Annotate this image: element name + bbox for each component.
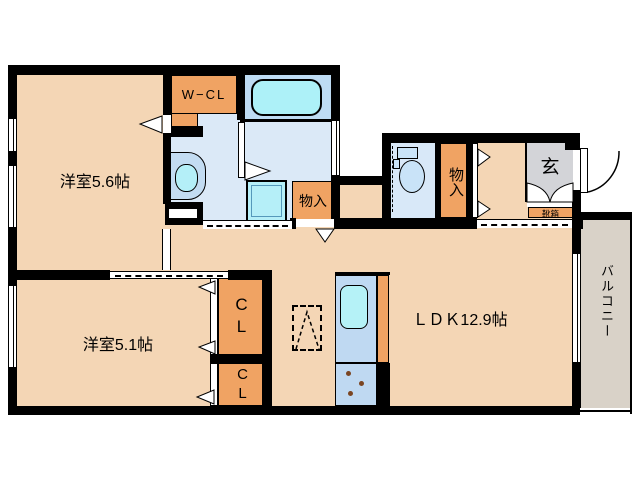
bedroom1-label: 洋室5.6帖 xyxy=(33,168,157,192)
wall-wcl-step xyxy=(171,126,203,137)
storage-washroom-label: 物入 xyxy=(292,191,334,211)
wall-top-right-block xyxy=(382,133,580,143)
window-washroom xyxy=(331,120,340,176)
wall-kitchen-southeast xyxy=(377,363,390,406)
wall-balcony-top xyxy=(572,212,632,220)
sliding-door-dash xyxy=(207,225,289,227)
wall-bedrooms-divider-west xyxy=(8,270,110,280)
stove-burner-icon xyxy=(346,371,351,376)
window-glass-line xyxy=(13,166,14,227)
refrigerator-space-icon xyxy=(292,305,322,351)
window-balcony-sliding xyxy=(572,253,581,363)
entrance-door-leaf xyxy=(580,148,588,193)
toilet-handle-icon xyxy=(393,159,400,169)
toilet-door-dashed-line xyxy=(392,146,393,212)
wall-partition-mid xyxy=(163,133,171,204)
bathroom-door-leaf xyxy=(238,122,245,178)
floor-plan: 洋室5.6帖 洋室5.1帖 ＬＤＫ12.9帖 W−CL 物入 物入 玄 靴箱 C… xyxy=(0,0,638,480)
balcony-label: バルコニー xyxy=(596,232,616,370)
wall-top-left-block xyxy=(8,65,340,75)
wall-closet-divider xyxy=(210,355,272,363)
bathtub-icon xyxy=(251,79,322,116)
entrance-label: 玄 xyxy=(527,152,573,179)
wall-ldk-west xyxy=(263,270,272,406)
kitchen-sink-icon xyxy=(340,285,368,329)
window-bedroom2 xyxy=(8,285,17,368)
wall-thin-partition xyxy=(162,229,171,270)
sliding-door-hallway-ldk xyxy=(477,219,572,228)
wall-balcony-west-upper xyxy=(572,220,581,253)
window-glass-line xyxy=(336,121,337,175)
window-glass-line xyxy=(577,254,578,362)
stove-burner-icon xyxy=(359,381,364,386)
door-closet-upper xyxy=(210,278,218,355)
entrance-door-arc-icon xyxy=(588,151,619,192)
closet-upper-label: CL xyxy=(230,288,251,346)
exterior-void-notch xyxy=(340,0,382,177)
wall-nub-slot xyxy=(169,209,197,218)
window-glass-line xyxy=(13,119,14,151)
window-bedroom1-b xyxy=(8,165,17,228)
bedroom2-label: 洋室5.1帖 xyxy=(56,331,180,355)
door-storage-hall xyxy=(472,143,478,218)
window-glass-line xyxy=(13,286,14,367)
exterior-void-topright xyxy=(382,0,638,133)
vanity-basin-icon xyxy=(175,164,198,192)
wall-toilet-storage-divider xyxy=(435,143,440,218)
wall-entrance-corner xyxy=(565,133,580,150)
storage-hall-label: 物入 xyxy=(442,151,466,213)
entrance-step-strip xyxy=(527,200,573,207)
washing-machine-pan-icon xyxy=(246,180,287,222)
wall-ldk-north-b xyxy=(334,218,477,229)
wall-balcony-west-lower xyxy=(572,363,581,408)
sliding-door-washroom xyxy=(203,220,292,229)
washing-machine-pan-inner xyxy=(251,185,282,217)
door-closet-lower xyxy=(210,363,218,406)
walk-in-closet-area-lower xyxy=(171,113,198,127)
toilet-tank-icon xyxy=(397,147,418,159)
walk-in-closet-label: W−CL xyxy=(168,87,240,102)
wall-entrance-door-jamb xyxy=(572,190,581,220)
sliding-door-bedroom2 xyxy=(110,271,228,279)
wall-toilet-west xyxy=(382,133,391,228)
door-gap-bedroom1-wcl xyxy=(163,115,171,133)
balcony-outer-edge-right xyxy=(630,212,632,414)
sliding-door-dash xyxy=(481,224,568,226)
kitchen-stove-unit-icon xyxy=(335,363,377,406)
balcony-outer-edge-bottom xyxy=(576,410,632,412)
window-bedroom1-a xyxy=(8,118,17,152)
door-storage-washroom xyxy=(296,219,334,227)
wall-bottom xyxy=(8,406,580,415)
stove-burner-icon xyxy=(348,391,353,396)
bathroom-washroom-divider xyxy=(240,119,331,122)
shoe-box-label: 靴箱 xyxy=(528,208,573,220)
toilet-bowl-icon xyxy=(399,160,425,193)
sliding-door-dash xyxy=(115,275,224,277)
closet-lower-label: CL xyxy=(230,366,251,404)
ldk-label: ＬＤＫ12.9帖 xyxy=(385,306,535,330)
